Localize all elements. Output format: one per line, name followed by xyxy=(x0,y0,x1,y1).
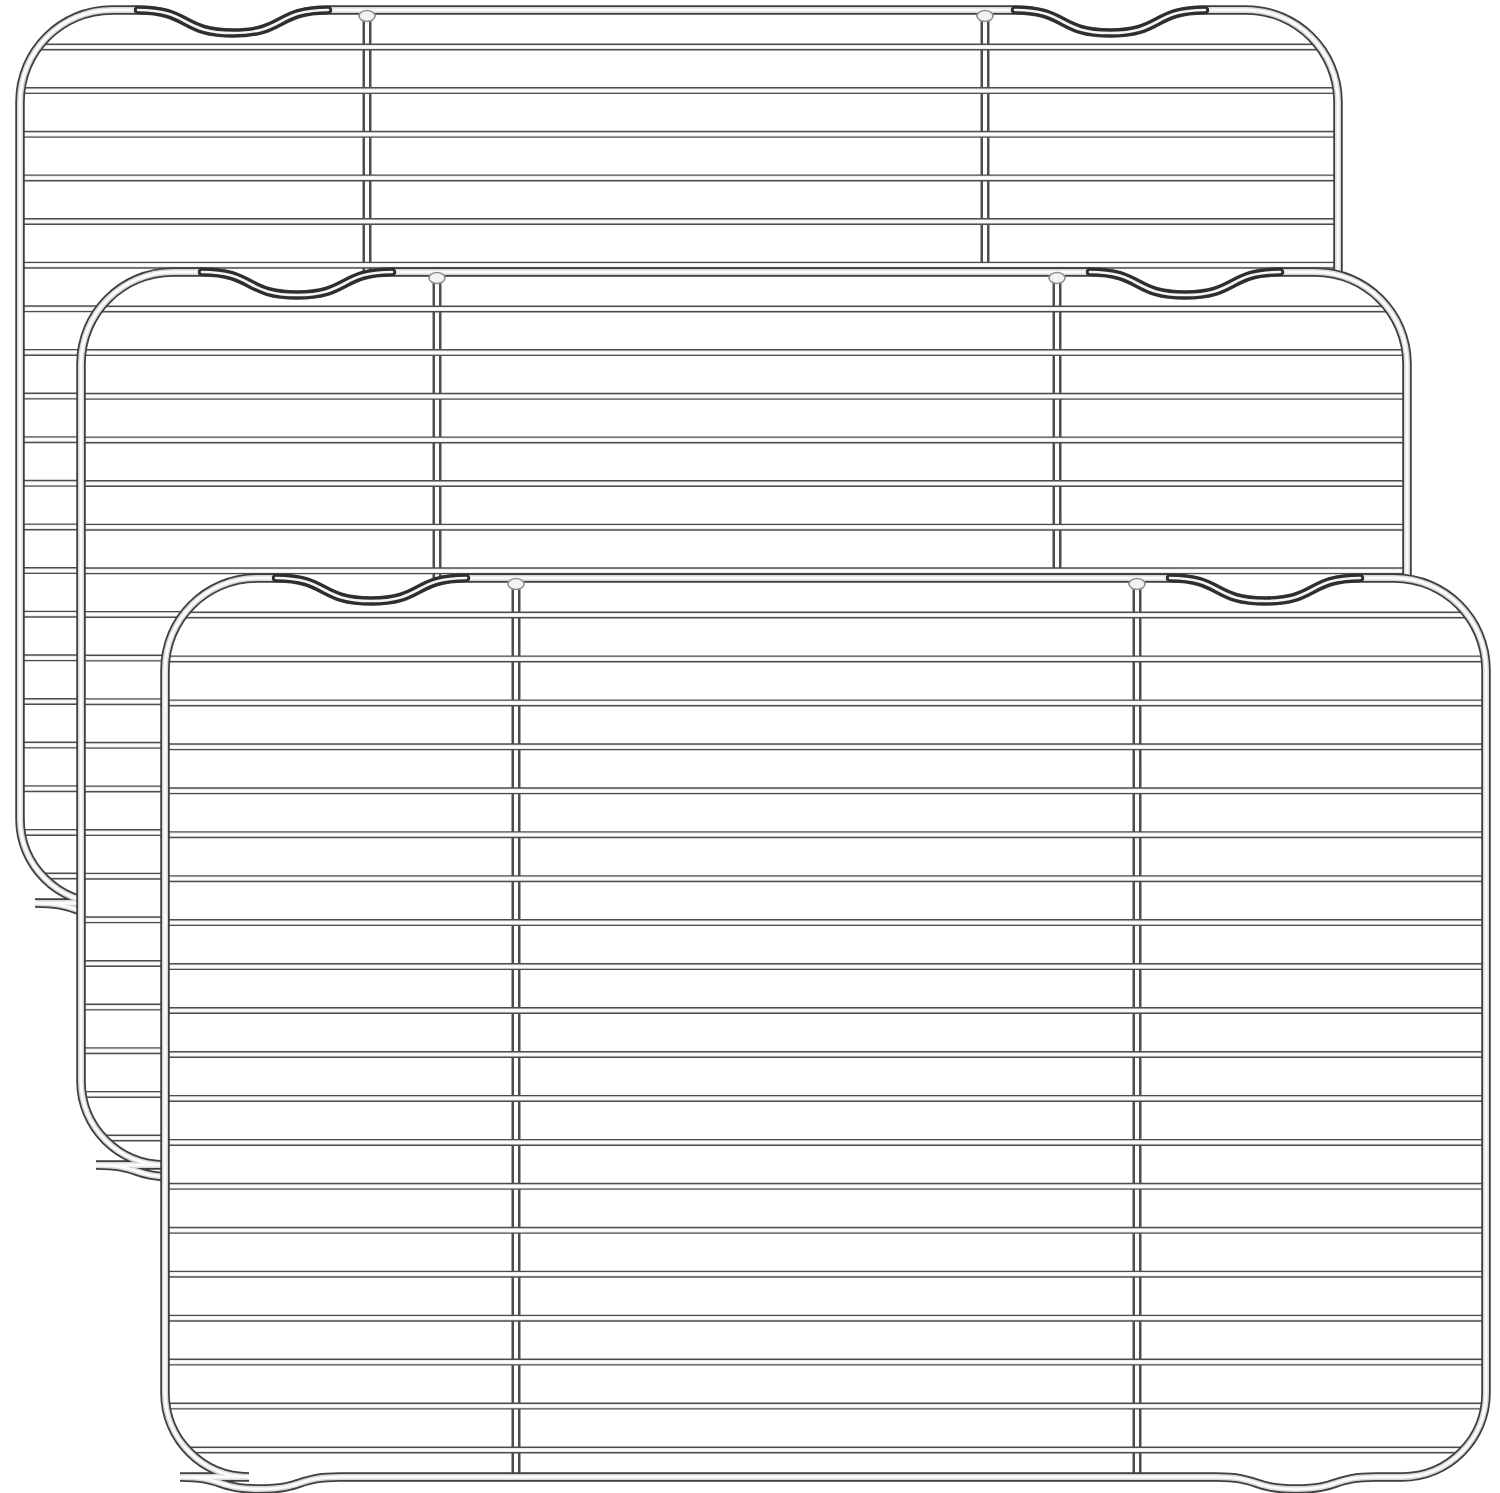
weld-joint xyxy=(359,11,375,22)
cooling-rack-front xyxy=(165,578,1486,1489)
weld-joint xyxy=(429,273,445,284)
weld-joint xyxy=(977,11,993,22)
rack-silhouette xyxy=(165,578,1486,1489)
weld-joint xyxy=(508,579,524,590)
product-photo xyxy=(0,0,1500,1493)
weld-joint xyxy=(1129,579,1145,590)
cooling-rack-set-illustration xyxy=(0,0,1500,1493)
weld-joint xyxy=(1049,273,1065,284)
